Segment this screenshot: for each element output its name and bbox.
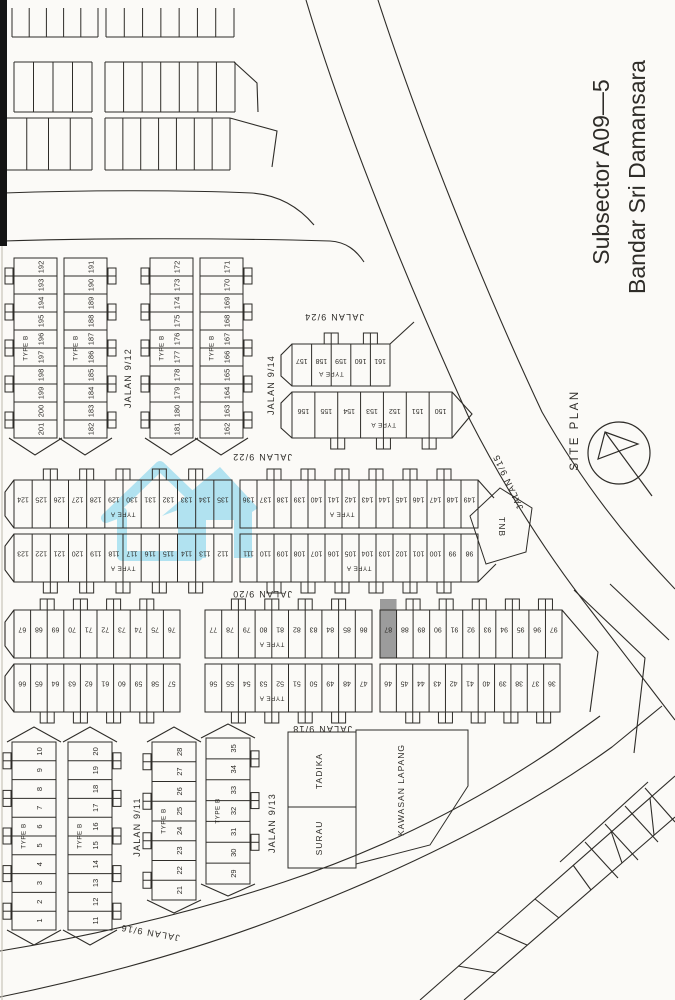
type-label: TYPE A (346, 564, 371, 571)
lot-number: 57 (168, 680, 176, 687)
scan-artifacts (0, 0, 7, 1000)
lot-number: 156 (297, 407, 309, 414)
lot-number: 196 (36, 333, 45, 346)
lot-comb (5, 118, 230, 170)
lot-number: 177 (172, 351, 181, 364)
map-line (5, 480, 14, 528)
lot-number: 11 (91, 917, 100, 925)
lot-number: 78 (226, 626, 234, 633)
lot-number: 137 (260, 496, 272, 503)
lot-number: 80 (259, 626, 267, 633)
lot-number: 26 (175, 787, 184, 795)
lot-number: 27 (175, 767, 184, 775)
lot-number: 8 (35, 787, 44, 791)
lot-number: 52 (276, 680, 284, 687)
lot-number: 89 (417, 626, 425, 633)
north-arrow-triangle (598, 432, 638, 459)
street-label: JALAN 9/15 (491, 453, 525, 512)
map-line (145, 438, 198, 455)
lot-block-outline (292, 392, 452, 438)
lot-number: 83 (310, 626, 318, 633)
lot-number: 74 (135, 626, 143, 633)
lot-number: 192 (36, 261, 45, 274)
lot-number: 41 (466, 680, 474, 687)
type-label: TYPE B (208, 335, 215, 360)
lot-number: 113 (199, 550, 210, 557)
lot-number: 160 (355, 357, 367, 364)
lot-number: 200 (36, 405, 45, 418)
street-label: JALAN 9/13 (267, 793, 277, 853)
lot-block-outline (380, 610, 562, 658)
lot-number: 164 (222, 387, 231, 400)
lot-number: 13 (91, 879, 100, 887)
map-line (5, 664, 14, 712)
lot-number: 161 (374, 357, 386, 364)
north-arrow-circle (588, 422, 650, 484)
lot-number: 198 (36, 369, 45, 382)
street-label: JALAN 9/14 (266, 355, 276, 415)
lot-number: 142 (345, 496, 357, 503)
lot-number: 159 (335, 357, 347, 364)
map-line (9, 438, 62, 455)
area-kawasan-lapang (356, 730, 468, 864)
lot-number: 135 (217, 496, 229, 503)
lot-number: 155 (320, 407, 332, 414)
lot-number: 10 (35, 747, 44, 755)
lot-number: 82 (293, 626, 301, 633)
lot-number: 17 (91, 804, 100, 812)
lot-number: 126 (53, 496, 65, 503)
area-label-tnb: TNB (497, 517, 507, 537)
map-line (497, 932, 527, 945)
lot-number: 119 (90, 550, 101, 557)
lot-number: 49 (326, 680, 334, 687)
lot-block (292, 392, 452, 449)
type-label: TYPE B (72, 335, 79, 360)
lot-number: 50 (310, 680, 318, 687)
lot-number: 37 (531, 680, 539, 687)
lot-number: 187 (86, 333, 95, 346)
lot-number: 118 (108, 550, 119, 557)
street-label: JALAN 9/20 (232, 589, 292, 599)
map-line (7, 727, 61, 742)
type-label: TYPE A (259, 694, 284, 701)
map-line (281, 392, 292, 438)
lot-number: 150 (435, 407, 447, 414)
lot-number: 76 (168, 626, 176, 633)
lot-number: 146 (413, 496, 425, 503)
lot-number: 31 (229, 828, 238, 836)
lot-number: 163 (222, 405, 231, 418)
lot-number: 134 (199, 496, 211, 503)
lot-number: 30 (229, 849, 238, 857)
lot-number: 140 (311, 496, 323, 503)
lot-number: 169 (222, 297, 231, 310)
lot-number: 106 (328, 550, 340, 557)
lot-number: 67 (18, 626, 26, 633)
map-line (5, 610, 14, 658)
lot-number: 19 (91, 766, 100, 774)
lot-number: 87 (384, 626, 392, 633)
lot-number: 53 (259, 680, 267, 687)
map-line (7, 930, 61, 945)
lot-number: 185 (86, 369, 95, 382)
page-title-line2: Bandar Sri Damansara (624, 60, 650, 294)
lot-number: 21 (175, 886, 184, 894)
lot-number: 39 (499, 680, 507, 687)
lot-number: 88 (401, 626, 409, 633)
lot-number: 125 (35, 496, 47, 503)
lot-number: 112 (217, 550, 228, 557)
lot-number: 92 (467, 626, 475, 633)
lot-number: 99 (449, 550, 457, 557)
lot-number: 171 (222, 261, 231, 274)
lot-number: 170 (222, 279, 231, 292)
lot-number: 1 (35, 919, 44, 923)
lot-number: 18 (91, 785, 100, 793)
lot-number: 54 (243, 680, 251, 687)
lot-number: 36 (548, 680, 556, 687)
lot-number: 152 (389, 407, 401, 414)
street-label: JALAN 9/12 (123, 348, 133, 408)
lot-number: 100 (430, 550, 442, 557)
lot-block (380, 664, 560, 723)
map-line (458, 966, 496, 973)
lot-number: 2 (35, 900, 44, 904)
lot-number: 97 (550, 626, 558, 633)
lot-number: 133 (181, 496, 193, 503)
lot-number: 43 (433, 680, 441, 687)
site-plan-map: 192193194195196197198199200201TYPE B1911… (0, 0, 675, 1000)
lot-number: 180 (172, 405, 181, 418)
lot-block (205, 664, 372, 723)
lot-number: 28 (175, 748, 184, 756)
lot-number: 93 (484, 626, 492, 633)
map-line (234, 62, 258, 112)
area-label-tadika: TADIKA (314, 753, 324, 789)
lot-number: 60 (118, 680, 126, 687)
lot-number: 63 (68, 680, 76, 687)
lot-number: 144 (379, 496, 391, 503)
highlighted-lot (380, 610, 397, 658)
lot-number: 47 (360, 680, 368, 687)
lot-number: 16 (91, 822, 100, 830)
type-label: TYPE B (215, 798, 222, 823)
lot-number: 153 (366, 407, 378, 414)
lot-comb (12, 8, 234, 37)
lot-number: 166 (222, 351, 231, 364)
map-line (4, 191, 314, 225)
lot-number: 116 (145, 550, 156, 557)
type-label: TYPE B (22, 335, 29, 360)
lot-number: 108 (294, 550, 306, 557)
map-line (230, 118, 277, 167)
lot-number: 162 (222, 423, 231, 436)
lot-number: 46 (384, 680, 392, 687)
lot-number: 143 (362, 496, 374, 503)
lot-number: 138 (277, 496, 289, 503)
lot-number: 105 (345, 550, 357, 557)
lot-number: 141 (328, 496, 340, 503)
lot-number: 179 (172, 387, 181, 400)
lot-number: 197 (36, 351, 45, 364)
type-label: TYPE B (77, 823, 84, 848)
area-label-surau: SURAU (314, 821, 324, 856)
lot-number: 107 (311, 550, 323, 557)
lot-number: 168 (222, 315, 231, 328)
lot-number: 14 (91, 860, 100, 868)
lot-number: 174 (172, 297, 181, 310)
lot-number: 195 (36, 315, 45, 328)
lot-number: 123 (17, 550, 29, 557)
lot-number: 51 (293, 680, 301, 687)
lot-number: 115 (163, 550, 174, 557)
lot-number: 98 (466, 550, 474, 557)
lot-number: 103 (379, 550, 391, 557)
lot-number: 136 (243, 496, 255, 503)
lot-number: 184 (86, 387, 95, 400)
type-label: TYPE A (110, 510, 135, 517)
lot-number: 145 (396, 496, 408, 503)
scanned-site-plan-page: 192193194195196197198199200201TYPE B1911… (0, 0, 675, 1000)
lot-number: 181 (172, 423, 181, 436)
type-label: TYPE A (318, 370, 343, 377)
lot-number: 131 (144, 496, 156, 503)
map-line (390, 322, 414, 344)
lot-number: 122 (35, 550, 47, 557)
lot-number: 85 (343, 626, 351, 633)
lot-block (3, 742, 56, 930)
map-line (605, 824, 638, 860)
street-label: JALAN 9/16 (120, 923, 181, 943)
lot-number: 96 (533, 626, 541, 633)
map-line (5, 534, 14, 582)
lot-number: 25 (175, 807, 184, 815)
lot-number: 173 (172, 279, 181, 292)
area-outline (356, 730, 468, 864)
lot-number: 148 (447, 496, 459, 503)
lot-number: 84 (326, 626, 334, 633)
lot-number: 29 (229, 869, 238, 877)
lot-number: 191 (86, 261, 95, 274)
lot-number: 20 (91, 747, 100, 755)
lot-number: 42 (450, 680, 458, 687)
street-label: JALAN 9/18 (292, 724, 352, 734)
lot-number: 4 (35, 862, 44, 866)
map-line (478, 564, 496, 582)
lot-number: 62 (85, 680, 93, 687)
lot-number: 68 (35, 626, 43, 633)
area-label-kawasan-lapang: KAWASAN LAPANG (396, 744, 406, 836)
map-line (573, 865, 591, 890)
lot-number: 183 (86, 405, 95, 418)
lot-number: 101 (413, 550, 425, 557)
lot-number: 172 (172, 261, 181, 274)
type-label: TYPE B (161, 808, 168, 833)
lot-number: 73 (118, 626, 126, 633)
lot-number: 86 (360, 626, 368, 633)
lot-number: 95 (517, 626, 525, 633)
type-label: TYPE B (158, 335, 165, 360)
lot-number: 9 (35, 768, 44, 772)
site-plan-label: SITE PLAN (569, 389, 581, 470)
street-label: JALAN 9/24 (304, 312, 364, 322)
lot-number: 38 (515, 680, 523, 687)
lot-number: 77 (209, 626, 217, 633)
lot-number: 33 (229, 786, 238, 794)
street-label: JALAN 9/11 (132, 797, 142, 856)
highlighted-lot-porch (380, 599, 397, 610)
lot-number: 56 (209, 680, 217, 687)
lot-number: 22 (175, 866, 184, 874)
lot-block (5, 258, 57, 438)
map-line (452, 392, 472, 438)
type-label: TYPE B (21, 823, 28, 848)
lot-number: 176 (172, 333, 181, 346)
lot-number: 32 (229, 807, 238, 815)
lot-number: 199 (36, 387, 45, 400)
lot-number: 129 (108, 496, 120, 503)
lot-number: 165 (222, 369, 231, 382)
lot-number: 201 (36, 423, 45, 436)
lot-number: 48 (343, 680, 351, 687)
lot-number: 111 (243, 550, 254, 557)
lot-number: 157 (296, 357, 308, 364)
lot-number: 40 (482, 680, 490, 687)
lot-block (240, 534, 478, 593)
lot-number: 23 (175, 846, 184, 854)
lot-number: 12 (91, 898, 100, 906)
lot-number: 194 (36, 297, 45, 310)
lot-block (143, 742, 196, 900)
lot-number: 104 (362, 550, 374, 557)
lot-number: 127 (72, 496, 84, 503)
lot-number: 139 (294, 496, 306, 503)
map-line (281, 344, 292, 386)
lot-block-outline (380, 664, 560, 712)
plan-linework-layer: 192193194195196197198199200201TYPE B1911… (0, 0, 675, 1000)
lot-number: 15 (91, 841, 100, 849)
map-line (610, 584, 669, 640)
lot-number: 121 (53, 550, 65, 557)
map-line (147, 727, 201, 742)
lot-number: 58 (151, 680, 159, 687)
lot-number: 190 (86, 279, 95, 292)
lot-number: 55 (226, 680, 234, 687)
map-line (147, 900, 201, 913)
lot-number: 3 (35, 881, 44, 885)
lot-number: 154 (343, 407, 355, 414)
map-line (645, 788, 675, 822)
lot-number: 158 (315, 357, 327, 364)
map-line (59, 438, 112, 455)
street-label: JALAN 9/22 (232, 452, 292, 462)
scan-edge-bar (0, 0, 7, 246)
map-line (201, 724, 255, 738)
lot-number: 193 (36, 279, 45, 292)
type-label: TYPE A (259, 640, 284, 647)
lot-number: 186 (86, 351, 95, 364)
lot-number: 188 (86, 315, 95, 328)
lot-number: 110 (260, 550, 271, 557)
lot-number: 69 (52, 626, 60, 633)
lot-number: 79 (243, 626, 251, 633)
lot-number: 5 (35, 843, 44, 847)
lot-number: 120 (72, 550, 84, 557)
lot-number: 167 (222, 333, 231, 346)
lot-number: 34 (229, 765, 238, 773)
lot-number: 124 (17, 496, 29, 503)
lot-number: 35 (229, 744, 238, 752)
lot-number: 81 (276, 626, 284, 633)
type-label: TYPE A (110, 564, 135, 571)
lot-number: 66 (18, 680, 26, 687)
lot-number: 94 (500, 626, 508, 633)
lot-number: 64 (52, 680, 60, 687)
lot-number: 6 (35, 825, 44, 829)
type-label: TYPE A (329, 510, 354, 517)
lot-block (141, 258, 193, 438)
lot-number: 178 (172, 369, 181, 382)
lot-number: 70 (68, 626, 76, 633)
lot-number: 182 (86, 423, 95, 436)
lot-number: 149 (464, 496, 476, 503)
lot-number: 132 (162, 496, 174, 503)
lot-number: 44 (417, 680, 425, 687)
lot-number: 71 (85, 626, 93, 633)
map-line (535, 899, 559, 918)
north-arrow-icon (588, 422, 652, 496)
lot-number: 91 (450, 626, 458, 633)
lot-number: 147 (430, 496, 442, 503)
map-line (4, 239, 364, 262)
lot-number: 151 (412, 407, 424, 414)
lot-number: 114 (181, 550, 192, 557)
map-line (63, 727, 117, 742)
map-line (63, 930, 117, 945)
lot-number: 45 (401, 680, 409, 687)
map-line (585, 842, 618, 878)
lot-number: 175 (172, 315, 181, 328)
lot-number: 130 (126, 496, 138, 503)
lot-number: 90 (434, 626, 442, 633)
map-line (560, 782, 648, 862)
lot-number: 7 (35, 806, 44, 810)
lot-number: 75 (151, 626, 159, 633)
map-line (650, 798, 654, 835)
lot-number: 72 (101, 626, 109, 633)
lot-number: 128 (90, 496, 102, 503)
page-title-line1: Subsector A09—5 (588, 79, 614, 264)
lot-number: 102 (396, 550, 408, 557)
north-arrow-tail (605, 432, 652, 496)
map-line (562, 610, 598, 712)
lot-number: 117 (126, 550, 137, 557)
lot-block (14, 664, 180, 723)
lot-comb (14, 62, 235, 112)
lot-number: 24 (175, 827, 184, 835)
lot-number: 61 (101, 680, 109, 687)
type-label: TYPE A (371, 421, 396, 428)
lot-number: 59 (135, 680, 143, 687)
lot-number: 65 (35, 680, 43, 687)
lot-number: 189 (86, 297, 95, 310)
lot-number: 109 (277, 550, 289, 557)
